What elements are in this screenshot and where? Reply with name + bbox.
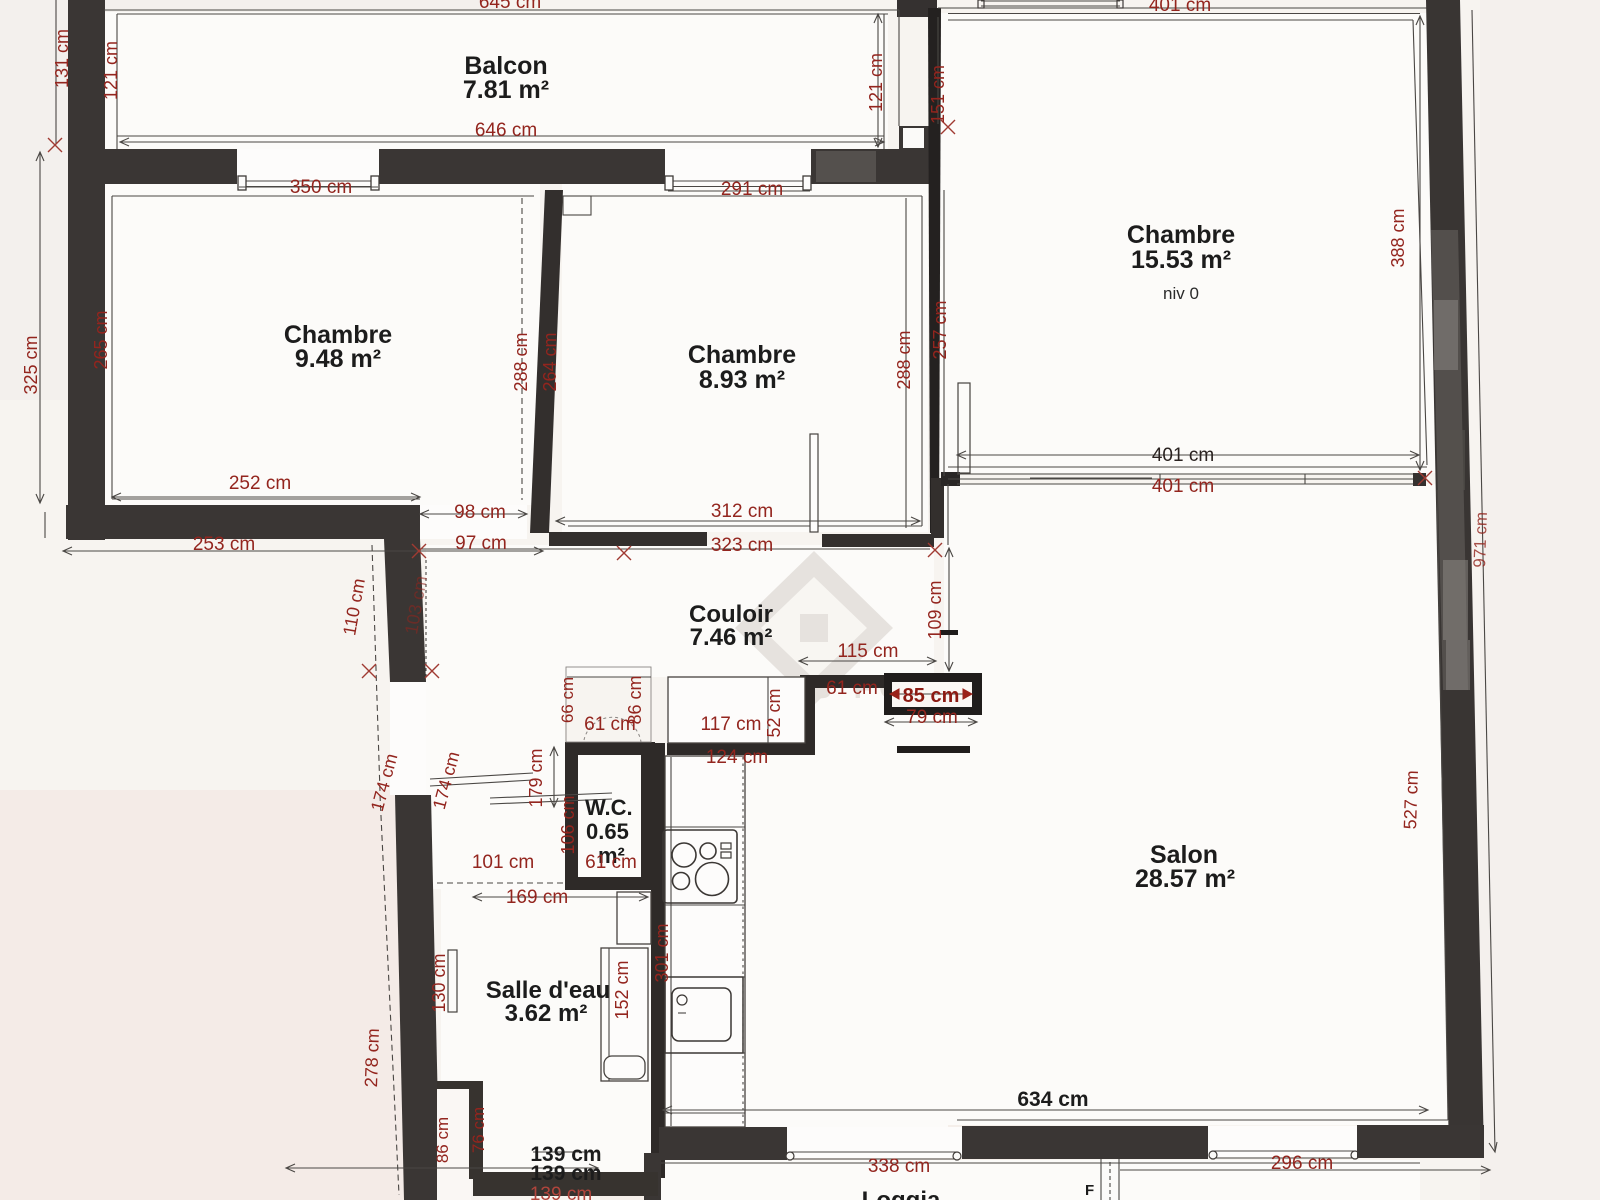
svg-text:W.C.: W.C. (585, 795, 633, 820)
svg-text:265 cm: 265 cm (91, 310, 111, 369)
svg-text:401 cm: 401 cm (1149, 0, 1211, 16)
svg-text:121 cm: 121 cm (101, 41, 121, 100)
svg-text:131 cm: 131 cm (52, 29, 72, 88)
svg-text:296 cm: 296 cm (1271, 1153, 1333, 1174)
svg-text:85 cm: 85 cm (903, 685, 960, 707)
svg-text:646 cm: 646 cm (475, 120, 537, 141)
svg-text:264 cm: 264 cm (540, 332, 560, 391)
svg-text:Loggia: Loggia (862, 1187, 941, 1200)
svg-text:338 cm: 338 cm (868, 1156, 930, 1177)
svg-text:257 cm: 257 cm (930, 300, 950, 359)
svg-text:179 cm: 179 cm (526, 748, 546, 807)
svg-text:401 cm: 401 cm (1152, 445, 1214, 466)
svg-text:971 cm: 971 cm (1470, 512, 1491, 568)
svg-text:86 cm: 86 cm (433, 1117, 452, 1163)
svg-text:9.48 m²: 9.48 m² (295, 345, 381, 373)
svg-text:527 cm: 527 cm (1400, 770, 1422, 830)
svg-text:252 cm: 252 cm (229, 473, 291, 494)
svg-text:124 cm: 124 cm (706, 747, 768, 768)
svg-text:61 cm: 61 cm (826, 678, 878, 699)
svg-text:325 cm: 325 cm (21, 335, 41, 394)
svg-text:151 cm: 151 cm (928, 65, 948, 124)
svg-text:301 cm: 301 cm (652, 923, 672, 982)
svg-text:Chambre: Chambre (688, 341, 796, 369)
svg-text:121 cm: 121 cm (866, 53, 886, 112)
svg-text:291 cm: 291 cm (721, 179, 783, 200)
svg-text:152 cm: 152 cm (612, 960, 632, 1019)
svg-text:388 cm: 388 cm (1388, 208, 1408, 267)
svg-text:115 cm: 115 cm (838, 641, 899, 662)
svg-text:15.53 m²: 15.53 m² (1131, 246, 1231, 274)
svg-text:645 cm: 645 cm (479, 0, 541, 13)
svg-text:323 cm: 323 cm (711, 535, 773, 556)
svg-text:0.65: 0.65 (586, 819, 629, 844)
svg-text:109 cm: 109 cm (925, 580, 945, 639)
svg-text:130 cm: 130 cm (429, 953, 449, 1012)
svg-text:niv 0: niv 0 (1163, 284, 1199, 303)
svg-text:86 cm: 86 cm (625, 675, 645, 724)
svg-text:52 cm: 52 cm (764, 688, 784, 737)
svg-text:278 cm: 278 cm (361, 1028, 383, 1088)
svg-text:288 cm: 288 cm (894, 330, 914, 389)
svg-text:139 cm: 139 cm (530, 1162, 601, 1185)
svg-text:3.62 m²: 3.62 m² (505, 1000, 588, 1027)
svg-text:97 cm: 97 cm (455, 533, 507, 554)
svg-text:169 cm: 169 cm (506, 887, 568, 908)
svg-text:401 cm: 401 cm (1152, 476, 1214, 497)
svg-text:106 cm: 106 cm (558, 795, 578, 854)
svg-text:117 cm: 117 cm (701, 714, 762, 735)
svg-text:98 cm: 98 cm (454, 502, 506, 523)
svg-text:288 cm: 288 cm (511, 332, 531, 391)
svg-text:79 cm: 79 cm (906, 707, 958, 728)
svg-text:66 cm: 66 cm (558, 677, 577, 723)
svg-text:F: F (1085, 1182, 1094, 1199)
svg-text:312 cm: 312 cm (711, 501, 773, 522)
svg-text:101 cm: 101 cm (472, 852, 534, 873)
svg-text:350 cm: 350 cm (290, 177, 352, 198)
svg-text:28.57 m²: 28.57 m² (1135, 865, 1235, 893)
svg-text:7.81 m²: 7.81 m² (463, 76, 549, 104)
svg-text:61 cm: 61 cm (585, 852, 637, 873)
svg-text:253 cm: 253 cm (193, 534, 255, 555)
svg-text:7.46 m²: 7.46 m² (690, 624, 773, 651)
svg-text:76 cm: 76 cm (469, 1107, 488, 1153)
svg-text:Chambre: Chambre (1127, 221, 1235, 249)
svg-text:139 cm: 139 cm (530, 1184, 592, 1200)
svg-text:8.93 m²: 8.93 m² (699, 366, 785, 394)
svg-text:634 cm: 634 cm (1017, 1088, 1088, 1111)
